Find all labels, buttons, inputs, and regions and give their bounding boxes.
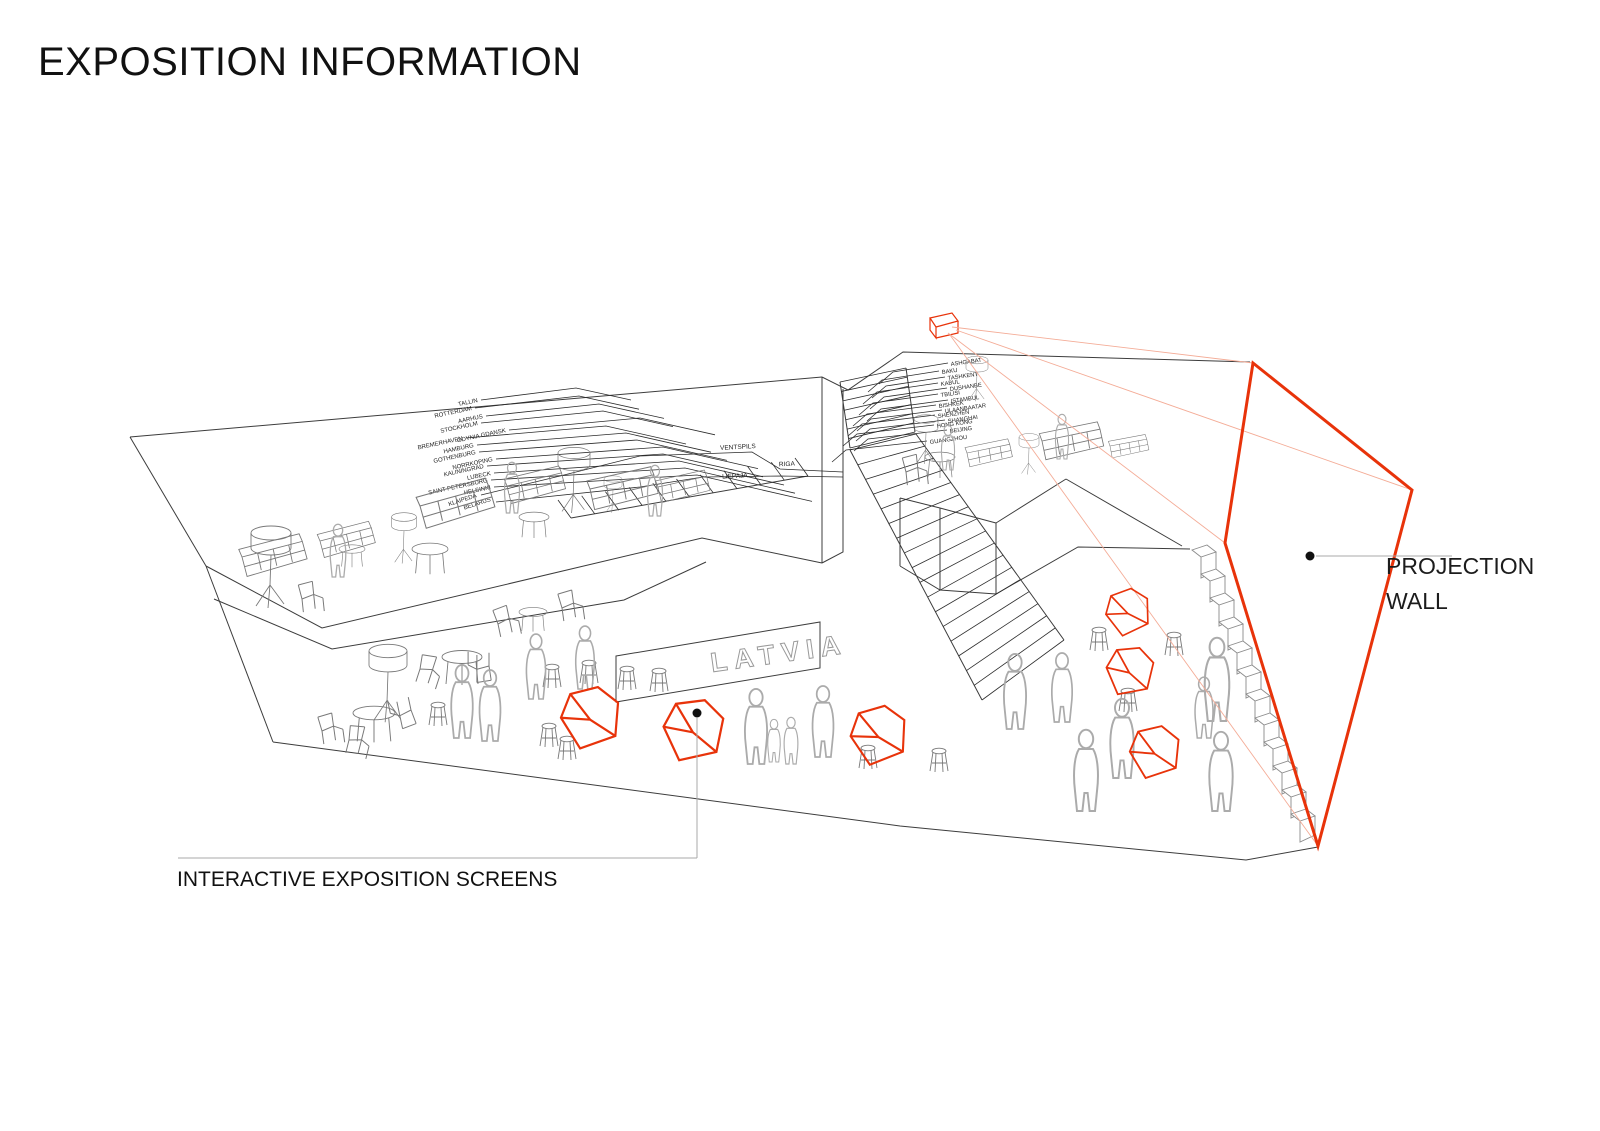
interactive-screen-cube[interactable] — [1129, 725, 1181, 779]
projection-wall-label-line2: WALL — [1386, 584, 1534, 619]
floor-lamp-icon — [369, 644, 407, 722]
person-figure — [745, 689, 767, 764]
city-label-left: GDYNIA GDANSK — [457, 428, 507, 444]
stool-icon — [429, 702, 447, 726]
interactive-screens-label: INTERACTIVE EXPOSITION SCREENS — [177, 868, 557, 892]
route-port-labels: VENTSPILSRIGALIEPAJA — [720, 443, 796, 481]
floor-lamp-icon — [558, 447, 590, 513]
callout-dot — [1306, 552, 1315, 561]
interactive-screen-cube[interactable] — [848, 704, 909, 766]
floor-lamp-icon — [251, 526, 291, 608]
interactive-screen-cube[interactable] — [1102, 586, 1153, 638]
person-figure — [330, 524, 346, 577]
chair-icon — [468, 652, 491, 683]
latvia-wall: LATVIA — [616, 622, 849, 702]
chair-icon — [388, 696, 417, 731]
round-table-icon — [519, 607, 547, 631]
sofa-icon — [1108, 434, 1149, 458]
projection-fan-lines — [948, 327, 1412, 846]
furniture — [238, 356, 1183, 772]
route-port-label: VENTSPILS — [720, 443, 757, 452]
person-figure — [1052, 653, 1072, 722]
round-table-icon — [442, 651, 482, 686]
round-table-icon — [412, 543, 448, 574]
person-figure — [768, 719, 781, 762]
pavilion-outline — [130, 352, 1318, 860]
stool-icon — [930, 748, 948, 772]
latvia-sign-text: LATVIA — [709, 629, 849, 678]
route-port-label: RIGA — [779, 461, 796, 469]
stool-icon — [859, 745, 877, 769]
chair-icon — [558, 589, 585, 623]
stool-icon — [540, 723, 558, 747]
projector-source — [930, 313, 958, 338]
chair-icon — [413, 653, 444, 689]
projection-wall-highlight[interactable] — [1225, 363, 1412, 846]
projection-wall-label-line1: PROJECTION — [1386, 549, 1534, 584]
stool-icon — [1165, 632, 1183, 656]
projection-wall-label: PROJECTION WALL — [1386, 549, 1534, 619]
city-label-right: GUANGZHOU — [929, 435, 967, 446]
person-figure — [1004, 654, 1026, 729]
round-table-icon — [339, 545, 365, 567]
person-figure — [526, 634, 545, 699]
sofa-icon — [965, 439, 1013, 467]
round-table-icon — [519, 512, 549, 538]
exposition-axonometric-drawing: LATVIA VENTSPILSRIGALIEPAJA TALLINROTTER… — [0, 0, 1600, 1131]
chair-icon — [492, 604, 521, 639]
stool-icon — [1090, 627, 1108, 651]
stool-icon — [650, 668, 668, 692]
chair-icon — [318, 712, 345, 746]
round-table-icon — [353, 706, 395, 742]
person-figure — [1074, 730, 1098, 811]
stool-icon — [618, 666, 636, 690]
chair-icon — [902, 453, 928, 486]
interactive-screens-callout — [178, 709, 702, 859]
person-figure — [813, 686, 834, 757]
person-figure — [1110, 699, 1133, 778]
person-figure — [648, 465, 663, 516]
person-figure — [784, 717, 798, 764]
callout-dot — [693, 709, 702, 718]
interactive-screen-cube[interactable] — [662, 698, 724, 762]
route-port-label: LIEPAJA — [722, 472, 749, 480]
interactive-screen-cube[interactable] — [559, 686, 621, 750]
interactive-screen-cube[interactable] — [1104, 645, 1154, 697]
stool-icon — [558, 736, 576, 760]
floor-lamp-icon — [392, 513, 417, 564]
person-figure — [1209, 732, 1232, 811]
chair-icon — [298, 580, 324, 613]
